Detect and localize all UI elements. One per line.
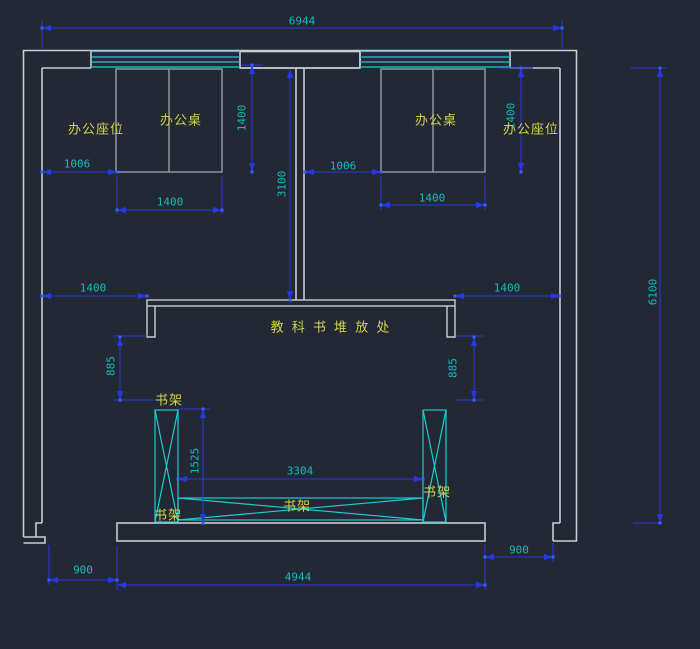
- dim-corridor: 3100: [277, 171, 288, 198]
- windows: [91, 52, 510, 68]
- bookshelf-left-cross: [155, 410, 178, 522]
- dim-right-desk-width: 1400: [419, 193, 446, 204]
- bottom-wall: [117, 523, 485, 541]
- counter-top-bar: [147, 300, 455, 306]
- dim-wall-to-counter-left: 1400: [80, 283, 107, 294]
- label-bookshelf-top-left: 书架: [155, 395, 183, 408]
- dim-right-clearance: 885: [448, 358, 459, 378]
- right-wall-bottom-step: [553, 523, 577, 541]
- dim-left-desk-width: 1400: [157, 197, 184, 208]
- dim-right-seat-width: 1006: [330, 161, 357, 172]
- dim-left-clearance: 885: [106, 356, 117, 376]
- label-bookshelf-middle: 书架: [283, 501, 311, 514]
- bookshelf-right-cross: [423, 410, 446, 522]
- dim-shelf-height: 1525: [190, 448, 201, 475]
- window-pier: [240, 52, 360, 69]
- counter-right-leg: [447, 306, 455, 337]
- center-partition-wall: [296, 68, 304, 300]
- counter-left-leg: [147, 306, 155, 337]
- window-left: [91, 52, 240, 68]
- label-office-seat-right: 办公座位: [503, 124, 559, 137]
- dim-total-width: 6944: [289, 16, 316, 27]
- bottom-platform: [117, 523, 485, 541]
- label-office-desk-right: 办公桌: [415, 115, 457, 128]
- window-jambs: [91, 50, 510, 68]
- dim-left-door: 900: [73, 565, 93, 576]
- dim-left-seat-width: 1006: [64, 159, 91, 170]
- label-office-desk-left: 办公桌: [160, 115, 202, 128]
- window-right: [360, 52, 510, 68]
- dim-left-room-depth: 1400: [237, 105, 248, 132]
- dim-bottom-opening: 4944: [285, 572, 312, 583]
- cad-drawing-canvas[interactable]: 6944 6100 1400 1400 3100 1006 1400 1006 …: [0, 0, 700, 649]
- dim-right-door: 900: [509, 545, 529, 556]
- label-bookshelf-bottom-left: 书架: [154, 510, 182, 523]
- left-wall-bottom-step: [24, 523, 46, 543]
- label-office-seat-left: 办公座位: [68, 124, 124, 137]
- dim-total-height: 6100: [648, 279, 659, 306]
- label-bookshelf-right: 书架: [423, 487, 451, 500]
- label-textbook-area: 教 科 书 堆 放 处: [271, 322, 392, 335]
- dim-shelf-span: 3304: [287, 466, 314, 477]
- dim-counter-to-wall-right: 1400: [494, 283, 521, 294]
